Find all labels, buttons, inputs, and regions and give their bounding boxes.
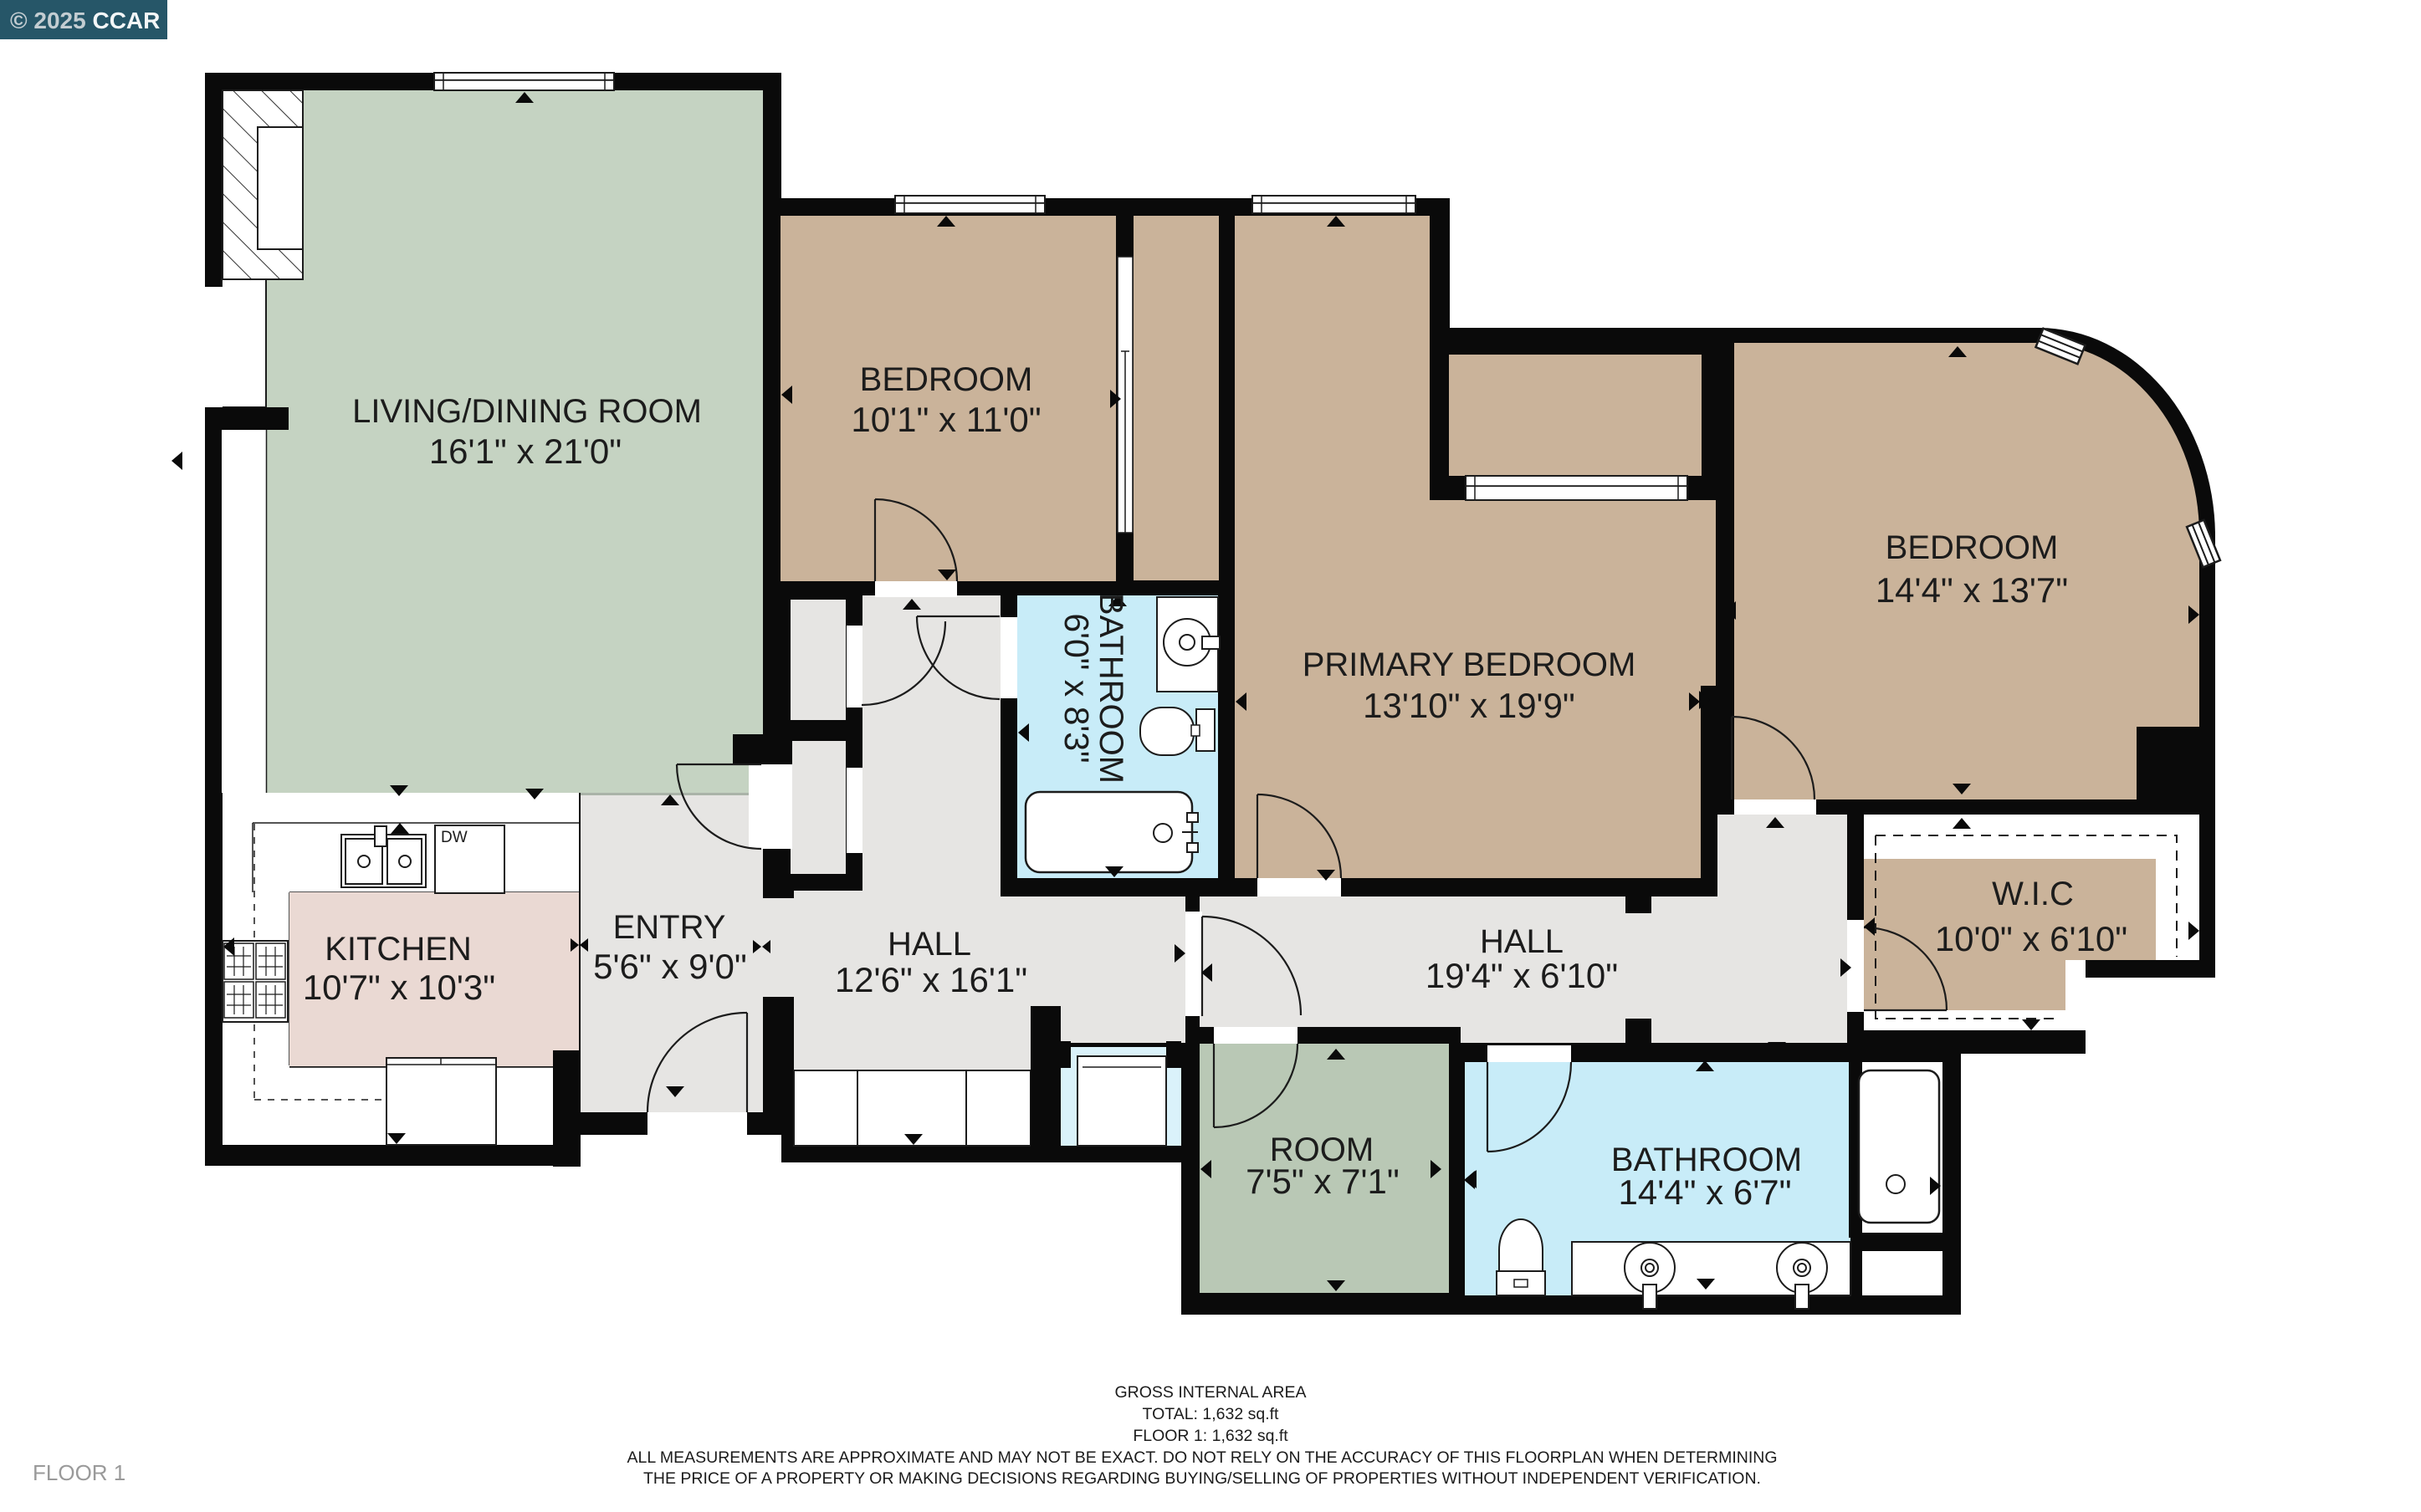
svg-text:THE PRICE OF A PROPERTY OR MAK: THE PRICE OF A PROPERTY OR MAKING DECISI…: [643, 1469, 1761, 1488]
svg-text:14'4" x 6'7": 14'4" x 6'7": [1619, 1172, 1792, 1212]
svg-text:5'6" x 9'0": 5'6" x 9'0": [593, 947, 747, 986]
svg-text:FLOOR 1: 1,632 sq.ft: FLOOR 1: 1,632 sq.ft: [1133, 1427, 1288, 1445]
svg-text:16'1" x 21'0": 16'1" x 21'0": [429, 432, 622, 471]
svg-text:BEDROOM: BEDROOM: [860, 361, 1033, 398]
svg-text:KITCHEN: KITCHEN: [325, 931, 472, 968]
svg-text:TOTAL: 1,632 sq.ft: TOTAL: 1,632 sq.ft: [1143, 1405, 1280, 1423]
svg-text:7'5" x 7'1": 7'5" x 7'1": [1246, 1162, 1400, 1201]
svg-text:10'7" x 10'3": 10'7" x 10'3": [303, 968, 495, 1007]
svg-text:10'1" x 11'0": 10'1" x 11'0": [851, 400, 1041, 439]
svg-text:14'4" x 13'7": 14'4" x 13'7": [1876, 570, 2068, 610]
svg-text:HALL: HALL: [888, 926, 971, 963]
svg-text:6'0" x 8'3": 6'0" x 8'3": [1057, 613, 1096, 763]
svg-text:ENTRY: ENTRY: [613, 909, 726, 946]
svg-text:PRIMARY BEDROOM: PRIMARY BEDROOM: [1303, 646, 1636, 683]
svg-text:ALL MEASUREMENTS ARE APPROXIMA: ALL MEASUREMENTS ARE APPROXIMATE AND MAY…: [627, 1448, 1777, 1467]
svg-text:W.I.C: W.I.C: [1992, 876, 2074, 912]
svg-text:DW: DW: [441, 829, 468, 846]
svg-text:BEDROOM: BEDROOM: [1886, 529, 2059, 566]
svg-text:10'0" x 6'10": 10'0" x 6'10": [1935, 919, 2127, 958]
svg-text:12'6" x 16'1": 12'6" x 16'1": [835, 960, 1027, 999]
svg-text:13'10" x 19'9": 13'10" x 19'9": [1363, 686, 1575, 725]
svg-text:19'4" x 6'10": 19'4" x 6'10": [1425, 956, 1618, 995]
svg-text:HALL: HALL: [1480, 923, 1564, 960]
svg-text:GROSS INTERNAL AREA: GROSS INTERNAL AREA: [1114, 1383, 1306, 1402]
svg-text:© 2025 CCAR: © 2025 CCAR: [10, 8, 160, 33]
svg-text:LIVING/DINING ROOM: LIVING/DINING ROOM: [352, 393, 702, 430]
svg-text:BATHROOM: BATHROOM: [1093, 593, 1129, 784]
svg-text:FLOOR 1: FLOOR 1: [33, 1460, 125, 1485]
